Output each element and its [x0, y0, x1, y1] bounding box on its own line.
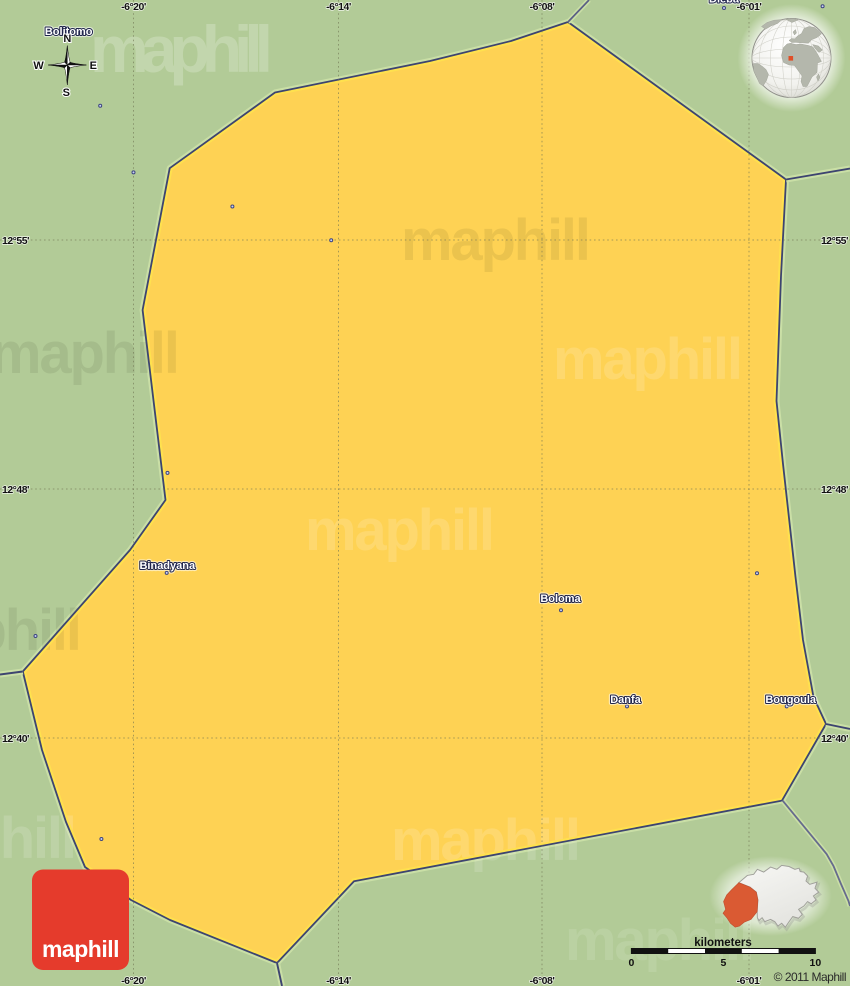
svg-text:0: 0 — [628, 957, 634, 969]
svg-text:maphill: maphill — [553, 327, 743, 392]
svg-text:maphill: maphill — [90, 12, 273, 86]
svg-text:-6°01': -6°01' — [737, 975, 762, 986]
svg-text:5: 5 — [720, 957, 726, 969]
svg-text:-6°14': -6°14' — [326, 975, 351, 986]
svg-text:© 2011 Maphill: © 2011 Maphill — [774, 970, 846, 984]
svg-text:12°55': 12°55' — [2, 235, 29, 247]
svg-text:-6°20': -6°20' — [121, 975, 146, 986]
svg-text:12°48': 12°48' — [821, 484, 848, 496]
svg-text:maphill: maphill — [391, 808, 581, 873]
svg-text:12°40': 12°40' — [2, 733, 29, 745]
svg-text:N: N — [63, 33, 71, 45]
svg-text:-6°08': -6°08' — [530, 1, 555, 13]
svg-text:10: 10 — [810, 957, 822, 969]
svg-text:-6°20': -6°20' — [121, 1, 146, 13]
svg-text:E: E — [90, 60, 97, 72]
svg-text:kilometers: kilometers — [694, 937, 752, 949]
svg-text:W: W — [33, 60, 44, 72]
svg-text:Bougoula: Bougoula — [765, 694, 817, 706]
svg-text:-6°01': -6°01' — [737, 1, 762, 13]
svg-text:12°55': 12°55' — [821, 235, 848, 247]
svg-text:Boloma: Boloma — [540, 593, 581, 605]
svg-text:Danfa: Danfa — [610, 694, 641, 706]
svg-text:Dieba: Dieba — [709, 0, 740, 6]
svg-text:12°40': 12°40' — [821, 733, 848, 745]
svg-text:-6°08': -6°08' — [530, 975, 555, 986]
svg-text:S: S — [63, 87, 70, 99]
svg-text:maphill: maphill — [305, 498, 495, 563]
svg-text:12°48': 12°48' — [2, 484, 29, 496]
svg-text:maphill: maphill — [401, 208, 591, 273]
svg-text:Binadyana: Binadyana — [139, 560, 196, 572]
svg-text:maphill: maphill — [42, 936, 119, 962]
svg-text:-6°14': -6°14' — [326, 1, 351, 13]
